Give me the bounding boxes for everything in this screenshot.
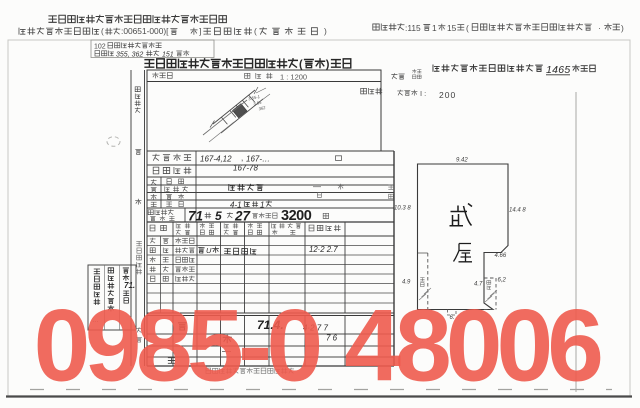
svg-text:1465: 1465 bbox=[546, 64, 571, 76]
svg-text::00651-000)[: :00651-000)[ bbox=[121, 26, 169, 36]
svg-text:15: 15 bbox=[447, 23, 457, 33]
svg-text:0985-0: 0985-0 bbox=[34, 289, 320, 403]
svg-text:—: — bbox=[313, 182, 321, 191]
svg-text:4-1: 4-1 bbox=[230, 201, 242, 210]
svg-text:27: 27 bbox=[234, 209, 252, 224]
svg-text:102: 102 bbox=[94, 44, 106, 51]
svg-text:4.9: 4.9 bbox=[402, 280, 411, 286]
svg-text:167-4,12: 167-4,12 bbox=[200, 155, 232, 164]
svg-text:14.4 8: 14.4 8 bbox=[509, 208, 526, 214]
svg-text:): ) bbox=[326, 59, 330, 71]
svg-text:167-78: 167-78 bbox=[233, 164, 258, 173]
svg-text:12·2 2.7: 12·2 2.7 bbox=[309, 245, 338, 254]
svg-text:6,2: 6,2 bbox=[498, 278, 507, 284]
svg-text:9.42: 9.42 bbox=[456, 158, 468, 164]
svg-text::115: :115 bbox=[405, 23, 421, 33]
svg-text:5: 5 bbox=[215, 209, 222, 223]
svg-text:7 6: 7 6 bbox=[326, 334, 338, 343]
svg-text:,: , bbox=[241, 154, 243, 163]
svg-text:(: ( bbox=[254, 26, 257, 36]
svg-text:151: 151 bbox=[162, 52, 174, 59]
svg-text:4.7: 4.7 bbox=[474, 282, 483, 288]
svg-text:·: · bbox=[598, 23, 601, 33]
svg-text:200: 200 bbox=[439, 90, 456, 100]
svg-text:): ) bbox=[324, 26, 327, 36]
svg-text:10.3 8: 10.3 8 bbox=[394, 206, 411, 212]
svg-text:1: 1 bbox=[260, 201, 264, 210]
svg-text:4.66: 4.66 bbox=[495, 253, 507, 259]
svg-text:I :: I : bbox=[420, 89, 426, 98]
svg-text:(: ( bbox=[466, 23, 469, 33]
svg-text:167-…: 167-… bbox=[246, 155, 270, 164]
svg-text:]: ] bbox=[199, 26, 201, 36]
svg-text:): ) bbox=[621, 23, 624, 33]
svg-text:1: 1 bbox=[432, 23, 437, 33]
svg-text:3200: 3200 bbox=[281, 208, 312, 224]
svg-text:1 : 1200: 1 : 1200 bbox=[280, 73, 307, 82]
svg-text:(: ( bbox=[299, 59, 303, 71]
svg-text:362: 362 bbox=[258, 105, 267, 111]
svg-text:355, 362: 355, 362 bbox=[116, 52, 143, 59]
svg-text:U: U bbox=[206, 246, 212, 255]
svg-text:48006: 48006 bbox=[344, 289, 601, 403]
svg-text:(: ( bbox=[101, 27, 104, 36]
svg-text:71: 71 bbox=[188, 209, 203, 224]
